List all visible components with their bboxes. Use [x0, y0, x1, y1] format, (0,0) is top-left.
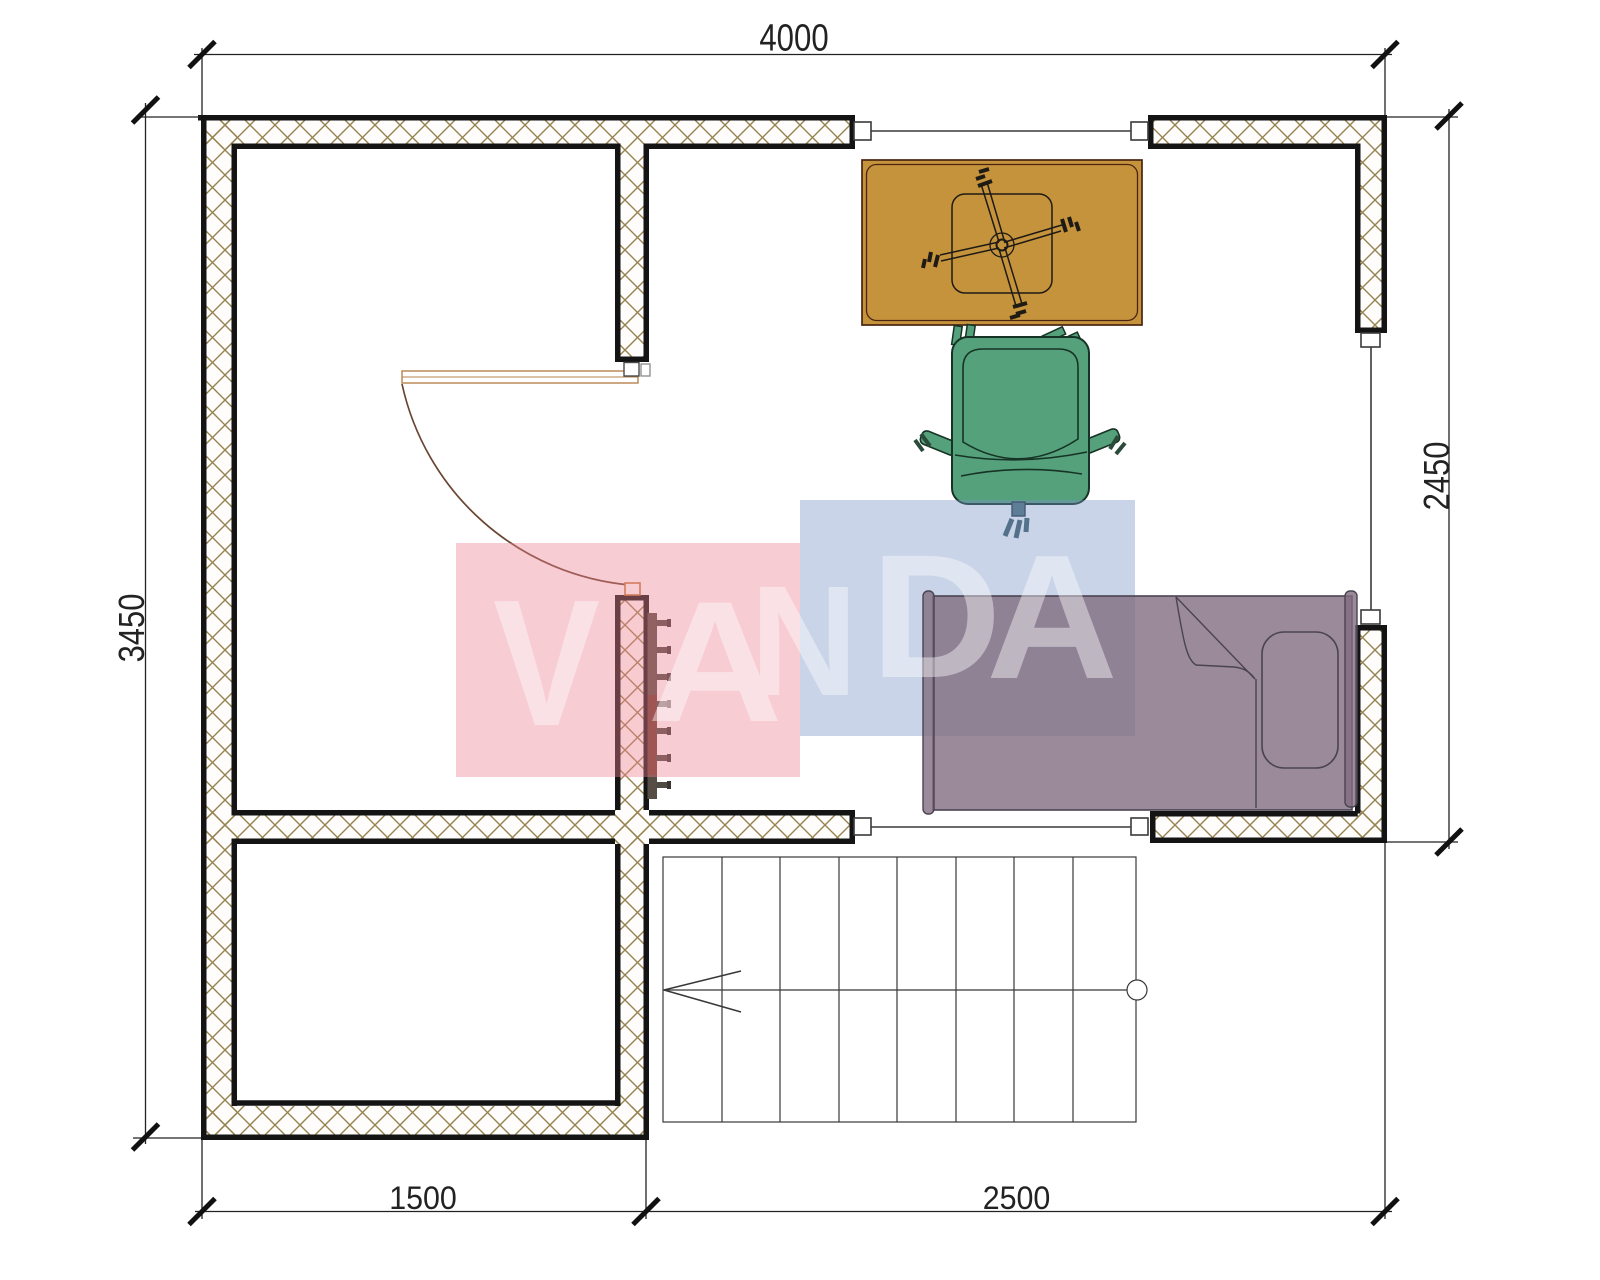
- svg-text:N: N: [750, 554, 858, 729]
- svg-text:3450: 3450: [113, 594, 153, 663]
- svg-text:2500: 2500: [983, 1180, 1051, 1216]
- svg-text:A: A: [986, 518, 1118, 716]
- svg-text:D: D: [871, 517, 1002, 714]
- svg-text:2450: 2450: [1418, 442, 1458, 511]
- svg-text:1500: 1500: [389, 1180, 457, 1216]
- svg-text:4000: 4000: [759, 18, 828, 60]
- svg-text:V: V: [493, 563, 600, 764]
